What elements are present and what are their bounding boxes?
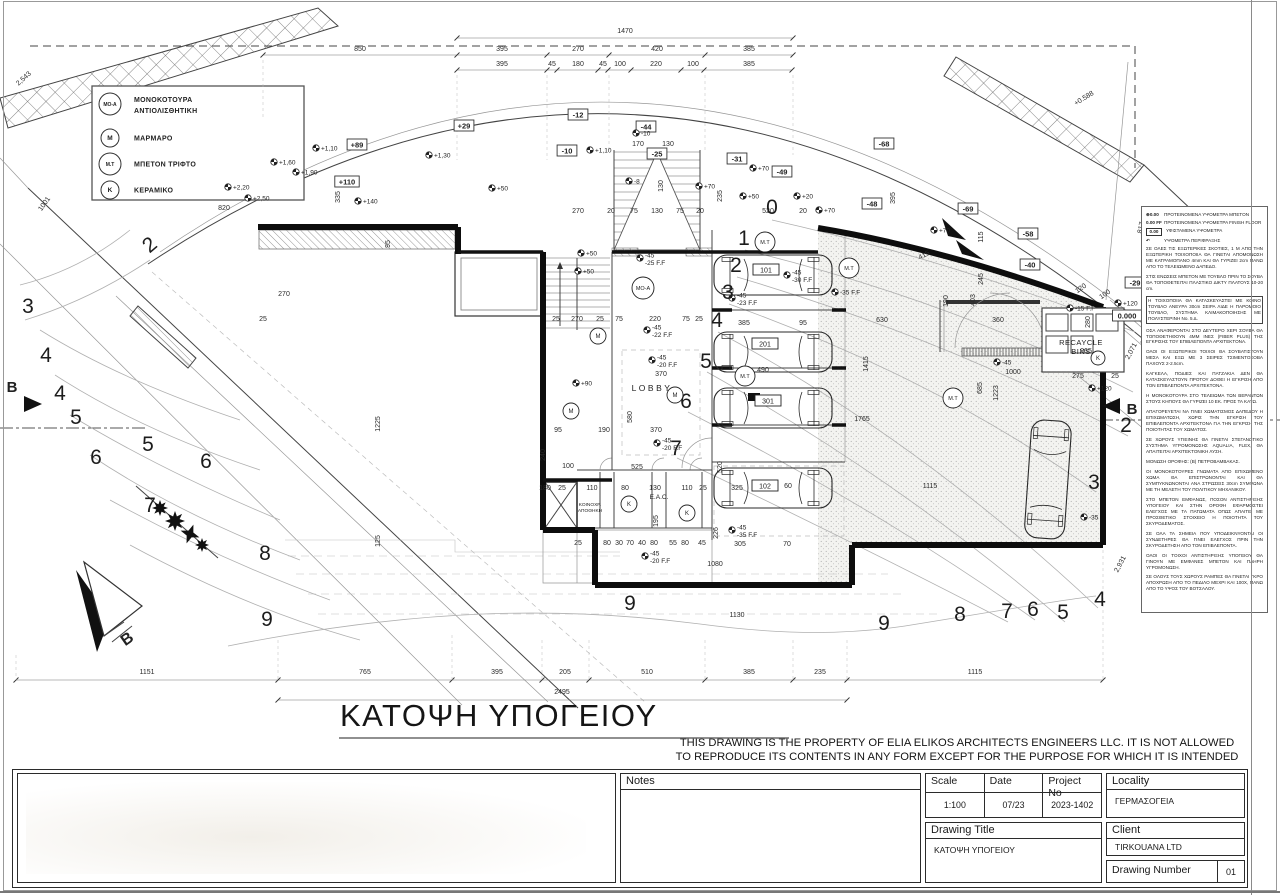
svg-text:M: M xyxy=(107,135,112,142)
titleblock-drawing-title: Drawing Title ΚΑΤΟΨΗ ΥΠΟΓΕΙΟΥ xyxy=(925,822,1102,883)
svg-text:100: 100 xyxy=(562,463,574,470)
svg-text:75: 75 xyxy=(630,208,638,215)
room-block-left xyxy=(455,252,543,316)
svg-text:20: 20 xyxy=(799,208,807,215)
note-paragraph: ΣΕ ΟΛΕΣ ΤΙΣ ΕΞΩΤΕΡΙΚΕΣ ΣΚΟΤΙΕΣ, 1 Μ ΑΠΟ … xyxy=(1146,246,1263,270)
svg-text:+89: +89 xyxy=(351,141,364,150)
property-notice-line1: THIS DRAWING IS THE PROPERTY OF ELIA ELI… xyxy=(648,737,1266,751)
svg-text:4: 4 xyxy=(40,344,52,367)
svg-text:1765: 1765 xyxy=(854,416,870,423)
svg-text:20: 20 xyxy=(696,208,704,215)
svg-text:2495: 2495 xyxy=(554,689,570,696)
svg-text:-25 F.F: -25 F.F xyxy=(645,260,665,267)
svg-text:K: K xyxy=(108,187,113,194)
svg-text:190: 190 xyxy=(598,427,610,434)
svg-text:-35 F.F: -35 F.F xyxy=(840,290,860,297)
svg-text:395: 395 xyxy=(496,61,508,68)
svg-text:1080: 1080 xyxy=(707,561,723,568)
svg-text:101: 101 xyxy=(760,268,772,275)
svg-text:-69: -69 xyxy=(963,205,974,214)
svg-text:1225: 1225 xyxy=(375,416,382,432)
titleblock-client: Client TIRKOUANA LTD xyxy=(1106,822,1245,856)
date-value: 07/23 xyxy=(985,793,1043,817)
svg-text:-29: -29 xyxy=(1130,279,1141,288)
property-notice-line2: TO REPRODUCE ITS CONTENTS IN ANY FORM EX… xyxy=(648,751,1266,765)
note-paragraph: ΣΤΙΣ ΕΝΩΣΕΙΣ ΜΠΕΤΟΝ ΜΕ ΤΟΥΒΛΟ ΠΡΙΝ ΤΟ ΣΟ… xyxy=(1146,274,1263,292)
svg-text:45: 45 xyxy=(599,61,607,68)
scale-cell: Scale 1:100 xyxy=(926,774,985,817)
svg-text:325: 325 xyxy=(731,485,743,492)
svg-text:-35: -35 xyxy=(1089,515,1099,522)
svg-text:525: 525 xyxy=(631,464,643,471)
svg-text:301: 301 xyxy=(762,399,774,406)
scale-label: Scale xyxy=(926,774,984,793)
svg-text:-45: -45 xyxy=(737,525,747,532)
svg-text:226: 226 xyxy=(713,527,720,539)
svg-text:385: 385 xyxy=(743,61,755,68)
page-title: ΚΑΤΟΨΗ ΥΠΟΓΕΙΟΥ xyxy=(340,698,658,734)
svg-text:M.T: M.T xyxy=(106,162,115,168)
svg-text:+50: +50 xyxy=(586,251,597,258)
svg-text:5: 5 xyxy=(70,406,82,429)
svg-text:-45: -45 xyxy=(645,253,655,260)
svg-text:1470: 1470 xyxy=(617,28,633,35)
note-paragraph: ΣΤΟ ΜΠΕΤΟΝ ΕΜΦΑΝΩΣ, ΠΟΣΟΝ ΑΝΤΙΣΤΗΡΙΞΗΣ Υ… xyxy=(1146,497,1263,527)
project-label: Project Nο xyxy=(1043,774,1101,793)
svg-text:BINS: BINS xyxy=(1071,347,1091,356)
svg-text:245: 245 xyxy=(978,273,985,285)
svg-text:-35 F.F: -35 F.F xyxy=(737,532,757,539)
date-label: Date xyxy=(985,774,1043,793)
svg-text:5: 5 xyxy=(142,433,154,456)
svg-text:-8: -8 xyxy=(634,179,640,186)
notes-panel: ⊕0.00ΠΡΟΤΕΙΝΟΜΕΝΑ ΥΨΟΜΕΤΡΑ ΜΠΕΤΟΝ0.00 FF… xyxy=(1141,206,1268,613)
svg-text:-58: -58 xyxy=(1023,230,1034,239)
svg-text:55: 55 xyxy=(669,540,677,547)
svg-text:195: 195 xyxy=(653,515,660,527)
svg-text:130: 130 xyxy=(649,485,661,492)
svg-text:8: 8 xyxy=(954,603,966,626)
svg-text:420: 420 xyxy=(651,46,663,53)
svg-text:4: 4 xyxy=(54,382,66,405)
svg-text:RECAYCLE: RECAYCLE xyxy=(1059,338,1103,347)
svg-text:25: 25 xyxy=(552,316,560,323)
svg-text:+140: +140 xyxy=(363,199,378,206)
svg-text:MO-A: MO-A xyxy=(103,102,117,108)
svg-text:385: 385 xyxy=(743,46,755,53)
svg-text:1130: 1130 xyxy=(729,612,744,619)
svg-text:100: 100 xyxy=(687,61,699,68)
svg-text:-31: -31 xyxy=(732,155,743,164)
svg-text:+1,30: +1,30 xyxy=(434,153,451,160)
locality-label: Locality xyxy=(1107,774,1244,790)
svg-text:5: 5 xyxy=(700,350,712,373)
client-value: TIRKOUANA LTD xyxy=(1107,839,1244,855)
svg-text:765: 765 xyxy=(359,669,371,676)
svg-text:M: M xyxy=(673,393,678,399)
svg-text:80: 80 xyxy=(603,540,611,547)
notes-label: Notes xyxy=(621,774,920,790)
svg-text:-45: -45 xyxy=(650,551,660,558)
note-paragraph: ΚΑΓΚΕΛΑ, ΠΟΔΙΕΣ ΚΑΙ ΠΑΤΖΑΚΙΑ ΔΕΝ ΘΑ ΚΑΤΑ… xyxy=(1146,371,1263,389)
svg-text:7: 7 xyxy=(144,494,156,517)
svg-text:-48: -48 xyxy=(867,200,878,209)
svg-text:80: 80 xyxy=(621,485,629,492)
svg-text:110: 110 xyxy=(681,485,692,492)
svg-text:ΚΟΙΝΟΧΡ.: ΚΟΙΝΟΧΡ. xyxy=(579,502,601,508)
svg-text:+90: +90 xyxy=(581,381,592,388)
svg-text:+1,60: +1,60 xyxy=(279,160,296,167)
svg-text:360: 360 xyxy=(992,317,1004,324)
svg-text:75: 75 xyxy=(676,208,684,215)
note-marker: ⊕0.00ΠΡΟΤΕΙΝΟΜΕΝΑ ΥΨΟΜΕΤΡΑ ΜΠΕΤΟΝ xyxy=(1146,212,1263,218)
svg-text:+120: +120 xyxy=(1097,386,1112,393)
svg-text:-22 F.F: -22 F.F xyxy=(652,332,672,339)
svg-text:60: 60 xyxy=(784,483,792,490)
svg-text:M.T: M.T xyxy=(740,374,750,380)
svg-text:180: 180 xyxy=(539,485,551,492)
svg-text:M.T: M.T xyxy=(948,396,958,402)
svg-text:80: 80 xyxy=(650,540,658,547)
svg-text:-45: -45 xyxy=(652,325,662,332)
svg-text:201: 201 xyxy=(759,342,771,349)
note-paragraph: Η ΜΟΝΟΚΟΤΟΥΡΑ ΣΤΟ ΤΕΛΕΙΩΜΑ ΤΩΝ ΒΕΡΑΝΤΩΝ … xyxy=(1146,393,1263,405)
note-paragraph: ΟΛΟΙ ΟΙ ΕΞΩΤΕΡΙΚΟΙ ΤΟΙΧΟΙ ΘΑ ΣΟΥΒΑΤΙΣΤΟΥ… xyxy=(1146,349,1263,367)
svg-text:270: 270 xyxy=(572,46,584,53)
svg-text:1115: 1115 xyxy=(923,483,938,490)
svg-text:-12: -12 xyxy=(573,111,584,120)
svg-text:K: K xyxy=(1096,356,1100,362)
svg-text:-45: -45 xyxy=(657,355,667,362)
svg-text:130: 130 xyxy=(658,180,665,192)
svg-text:370: 370 xyxy=(655,371,667,378)
note-paragraph: ΜΟΝΩΣΗ ΟΡΟΦΗΣ: (Β) ΠΕΤΡΟΒΑΜΒΑΚΑΣ. xyxy=(1146,459,1263,465)
svg-text:+50: +50 xyxy=(748,194,759,201)
svg-text:70: 70 xyxy=(783,541,791,548)
svg-text:-45: -45 xyxy=(737,293,747,300)
svg-text:235: 235 xyxy=(717,190,724,202)
svg-text:+120: +120 xyxy=(1123,301,1138,308)
svg-text:K: K xyxy=(685,511,689,517)
svg-text:B: B xyxy=(7,379,18,396)
svg-text:+70: +70 xyxy=(939,228,950,235)
note-marker: 0.00 FFΠΡΟΤΕΙΝΟΜΕΝΑ ΥΨΟΜΕΤΡΑ FINISH FLOO… xyxy=(1146,220,1263,226)
date-cell: Date 07/23 xyxy=(985,774,1044,817)
svg-text:-45: -45 xyxy=(792,270,802,277)
note-marker: ↶ΥΨΟΜΕΤΡΑ ΠΕΡΙΦΡΑΞΗΣ xyxy=(1146,238,1263,244)
svg-text:110: 110 xyxy=(586,485,597,492)
svg-text:115: 115 xyxy=(978,231,985,242)
svg-text:305: 305 xyxy=(734,541,746,548)
svg-text:B: B xyxy=(1127,401,1138,418)
svg-text:+29: +29 xyxy=(458,122,471,131)
svg-text:80: 80 xyxy=(681,540,689,547)
svg-text:+1,10: +1,10 xyxy=(595,148,612,155)
svg-text:25: 25 xyxy=(259,316,267,323)
svg-text:-49: -49 xyxy=(777,168,788,177)
svg-text:100: 100 xyxy=(614,61,626,68)
locality-value: ΓΕΡΜΑΣΟΓΕΙΑ xyxy=(1107,790,1244,817)
svg-text:270: 270 xyxy=(278,291,290,298)
svg-text:5: 5 xyxy=(1057,601,1069,624)
svg-text:3: 3 xyxy=(722,281,734,304)
svg-text:820: 820 xyxy=(218,205,230,212)
svg-text:1223: 1223 xyxy=(993,385,1000,401)
note-paragraph: Η ΤΟΙΧΟΠΟΙΙΑ ΘΑ ΚΑΤΑΣΚΕΥΑΣΤΕΙ ΜΕ ΚΟΙΝΟ Τ… xyxy=(1146,296,1263,324)
sheet-right-margin-line xyxy=(1251,0,1252,895)
titleblock-stamp-box xyxy=(17,773,616,883)
svg-text:+70: +70 xyxy=(824,208,835,215)
svg-text:9: 9 xyxy=(624,592,636,615)
svg-text:LOBBY: LOBBY xyxy=(632,383,673,393)
svg-text:170: 170 xyxy=(632,141,644,148)
drawing-title-label: Drawing Title xyxy=(926,823,1101,839)
svg-text:630: 630 xyxy=(876,317,888,324)
svg-text:70: 70 xyxy=(626,540,634,547)
svg-text:125: 125 xyxy=(375,535,382,547)
svg-text:M: M xyxy=(569,409,574,415)
svg-text:ΜΠΕΤΟΝ ΤΡΙΦΤΟ: ΜΠΕΤΟΝ ΤΡΙΦΤΟ xyxy=(134,162,196,169)
svg-text:95: 95 xyxy=(385,240,392,248)
svg-text:-20 F.F: -20 F.F xyxy=(650,558,670,565)
titleblock-notes-box: Notes xyxy=(620,773,921,883)
trench-grating xyxy=(962,348,1044,356)
svg-text:7: 7 xyxy=(1001,600,1013,623)
note-paragraph: ΟΛΟΙ ΟΙ ΤΟΙΧΟΙ ΑΝΤΙΣΤΗΡΙΞΗΣ ΥΠΟΓΕΙΟΥ ΘΑ … xyxy=(1146,553,1263,571)
svg-text:102: 102 xyxy=(759,484,771,491)
svg-text:ΑΠΟΘΗΚΗ: ΑΠΟΘΗΚΗ xyxy=(578,508,603,514)
svg-text:20: 20 xyxy=(607,208,615,215)
svg-text:395: 395 xyxy=(890,192,897,204)
svg-text:1151: 1151 xyxy=(139,669,154,676)
note-paragraph: ΣΕ ΧΩΡΟΥΣ ΥΓΙΕΙΝΗΣ ΘΑ ΓΙΝΕΤΑΙ ΣΤΕΓΑΝΩΤΙΚ… xyxy=(1146,437,1263,455)
svg-text:1: 1 xyxy=(738,227,750,250)
svg-text:30: 30 xyxy=(615,540,623,547)
svg-text:370: 370 xyxy=(650,427,662,434)
svg-text:+70: +70 xyxy=(758,166,769,173)
note-paragraph: ΣΕ ΟΛΟΥΣ ΤΟΥΣ ΧΩΡΟΥΣ ΡΑΜΠΕΣ ΘΑ ΓΙΝΕΤΑΙ Γ… xyxy=(1146,574,1263,592)
drawing-number-value: 01 xyxy=(1217,861,1244,882)
svg-text:0: 0 xyxy=(766,196,778,219)
svg-text:9: 9 xyxy=(261,608,273,631)
svg-text:+1,10: +1,10 xyxy=(321,146,338,153)
titleblock-drawing-number: Drawing Number 01 xyxy=(1106,860,1245,883)
svg-text:685: 685 xyxy=(977,382,984,394)
svg-text:25: 25 xyxy=(699,485,707,492)
svg-text:385: 385 xyxy=(738,320,750,327)
svg-text:240: 240 xyxy=(540,449,547,461)
svg-text:E.A.C.: E.A.C. xyxy=(650,494,669,501)
svg-text:6: 6 xyxy=(90,446,102,469)
svg-text:K: K xyxy=(627,502,631,508)
svg-text:ΜΟΝΟΚΟΤΟΥΡΑ: ΜΟΝΟΚΟΤΟΥΡΑ xyxy=(134,97,193,104)
svg-text:6: 6 xyxy=(200,450,212,473)
svg-text:385: 385 xyxy=(743,669,755,676)
svg-text:280: 280 xyxy=(1085,316,1092,328)
svg-text:2: 2 xyxy=(730,254,742,277)
svg-text:+110: +110 xyxy=(339,178,355,187)
svg-text:-15 F.F: -15 F.F xyxy=(1075,306,1095,313)
svg-text:510: 510 xyxy=(641,669,653,676)
svg-text:+70: +70 xyxy=(704,184,715,191)
svg-text:75: 75 xyxy=(615,316,623,323)
note-paragraph: ΟΙ ΜΟΝΟΚΟΤΟΥΡΕΣ ΓΝΩΜΑΤΑ ΑΠΟ ΕΠΙΧΩΜΕΝΟ ΧΩ… xyxy=(1146,469,1263,493)
svg-text:275: 275 xyxy=(1072,373,1084,380)
project-value: 2023-1402 xyxy=(1043,793,1101,817)
svg-text:130: 130 xyxy=(662,141,674,148)
svg-text:25: 25 xyxy=(1111,373,1119,380)
svg-text:-40: -40 xyxy=(1025,261,1036,270)
svg-text:-68: -68 xyxy=(879,140,890,149)
note-paragraph: ΟΣΑ ΑΝΑΦΕΡΟΝΤΑΙ ΣΤΟ ΔΕΥΤΕΡΟ ΧΕΡΙ ΣΟΥΒΑ Θ… xyxy=(1146,328,1263,346)
svg-text:403: 403 xyxy=(970,294,977,306)
svg-text:850: 850 xyxy=(354,46,366,53)
svg-text:ΚΕΡΑΜΙΚΟ: ΚΕΡΑΜΙΚΟ xyxy=(134,188,174,195)
svg-text:0.000: 0.000 xyxy=(1118,312,1137,321)
svg-text:580: 580 xyxy=(627,411,634,423)
svg-text:3: 3 xyxy=(1088,471,1100,494)
svg-text:-10: -10 xyxy=(641,131,651,138)
svg-text:270: 270 xyxy=(572,208,584,215)
svg-text:40: 40 xyxy=(638,540,646,547)
svg-text:220: 220 xyxy=(650,61,662,68)
svg-text:-25: -25 xyxy=(652,150,663,159)
svg-text:520: 520 xyxy=(717,461,724,473)
svg-text:4: 4 xyxy=(711,309,723,332)
svg-text:7: 7 xyxy=(670,437,682,460)
titleblock-locality: Locality ΓΕΡΜΑΣΟΓΕΙΑ xyxy=(1106,773,1245,818)
note-paragraph: ΑΠΑΓΟΡΕΥΕΤΑΙ ΝΑ ΓΙΝΕΙ ΧΩΜΑΤΙΣΜΟΣ ΔΑΠΕΔΟΥ… xyxy=(1146,409,1263,433)
svg-text:3: 3 xyxy=(22,295,34,318)
titleblock-scale-row: Scale 1:100 Date 07/23 Project Nο 2023-1… xyxy=(925,773,1102,818)
svg-text:45: 45 xyxy=(698,540,706,547)
svg-text:+50: +50 xyxy=(583,269,594,276)
drawing-title-value: ΚΑΤΟΨΗ ΥΠΟΓΕΙΟΥ xyxy=(926,839,1101,882)
svg-text:25: 25 xyxy=(574,540,582,547)
svg-text:95: 95 xyxy=(799,320,807,327)
note-marker: 0.00ΥΦΙΣΤΑΜΕΝΑ ΥΨΟΜΕΤΡΑ xyxy=(1146,228,1263,236)
svg-text:M: M xyxy=(596,334,601,340)
svg-text:M.T: M.T xyxy=(844,266,854,272)
svg-text:-45: -45 xyxy=(1002,360,1012,367)
svg-text:335: 335 xyxy=(335,191,342,203)
legend-box xyxy=(92,86,304,200)
svg-text:MO-A: MO-A xyxy=(636,286,651,292)
svg-text:270: 270 xyxy=(571,316,583,323)
svg-text:1115: 1115 xyxy=(968,669,983,676)
svg-text:25: 25 xyxy=(695,316,703,323)
svg-text:+1,90: +1,90 xyxy=(301,170,318,177)
project-cell: Project Nο 2023-1402 xyxy=(1043,774,1101,817)
svg-text:490: 490 xyxy=(757,367,769,374)
svg-text:25: 25 xyxy=(558,485,566,492)
svg-text:-30 F.F: -30 F.F xyxy=(792,277,812,284)
svg-text:130: 130 xyxy=(651,208,663,215)
svg-text:95: 95 xyxy=(554,427,562,434)
svg-text:ΑΝΤΙΟΛΙΣΘΗΤΙΚΗ: ΑΝΤΙΟΛΙΣΘΗΤΙΚΗ xyxy=(134,108,197,115)
svg-text:395: 395 xyxy=(496,46,508,53)
svg-text:25: 25 xyxy=(596,316,604,323)
svg-text:45: 45 xyxy=(548,61,556,68)
svg-text:395: 395 xyxy=(491,669,503,676)
svg-text:235: 235 xyxy=(814,669,826,676)
floor-plan-drawing: MO-AΜΟΝΟΚΟΤΟΥΡΑΑΝΤΙΟΛΙΣΘΗΤΙΚΗMΜΑΡΜΑΡΟM.T… xyxy=(0,0,1280,766)
drawing-number-label: Drawing Number xyxy=(1107,861,1217,882)
svg-text:190: 190 xyxy=(943,295,950,307)
svg-text:+20: +20 xyxy=(802,194,813,201)
sheet-bottom-edge xyxy=(0,891,1280,893)
property-notice: THIS DRAWING IS THE PROPERTY OF ELIA ELI… xyxy=(648,737,1266,764)
planter-strip xyxy=(259,230,455,249)
scale-value: 1:100 xyxy=(926,793,984,817)
svg-text:8: 8 xyxy=(259,542,271,565)
svg-text:-23 F.F: -23 F.F xyxy=(737,300,757,307)
svg-text:220: 220 xyxy=(649,316,661,323)
svg-text:9: 9 xyxy=(878,612,890,635)
svg-text:75: 75 xyxy=(682,316,690,323)
svg-text:ΜΑΡΜΑΡΟ: ΜΑΡΜΑΡΟ xyxy=(134,136,173,143)
svg-text:180: 180 xyxy=(572,61,584,68)
scan-smudge xyxy=(26,782,586,874)
svg-text:-20 F.F: -20 F.F xyxy=(657,362,677,369)
svg-text:M.T: M.T xyxy=(760,240,770,246)
svg-text:+2,50: +2,50 xyxy=(253,196,270,203)
svg-text:-10: -10 xyxy=(562,147,573,156)
svg-text:+50: +50 xyxy=(497,186,508,193)
client-label: Client xyxy=(1107,823,1244,839)
note-paragraph: ΣΕ ΟΛΑ ΤΑ ΣΗΜΕΙΑ ΠΟΥ ΥΠΟΔΕΙΚΝΥΟΝΤΑΙ ΟΙ Σ… xyxy=(1146,531,1263,549)
svg-text:1000: 1000 xyxy=(1005,369,1021,376)
svg-text:205: 205 xyxy=(559,669,571,676)
svg-text:6: 6 xyxy=(1027,598,1039,621)
drawing-sheet: MO-AΜΟΝΟΚΟΤΟΥΡΑΑΝΤΙΟΛΙΣΘΗΤΙΚΗMΜΑΡΜΑΡΟM.T… xyxy=(0,0,1280,895)
svg-text:4: 4 xyxy=(1094,588,1106,611)
svg-text:+2,20: +2,20 xyxy=(233,185,250,192)
svg-text:1415: 1415 xyxy=(863,356,870,372)
